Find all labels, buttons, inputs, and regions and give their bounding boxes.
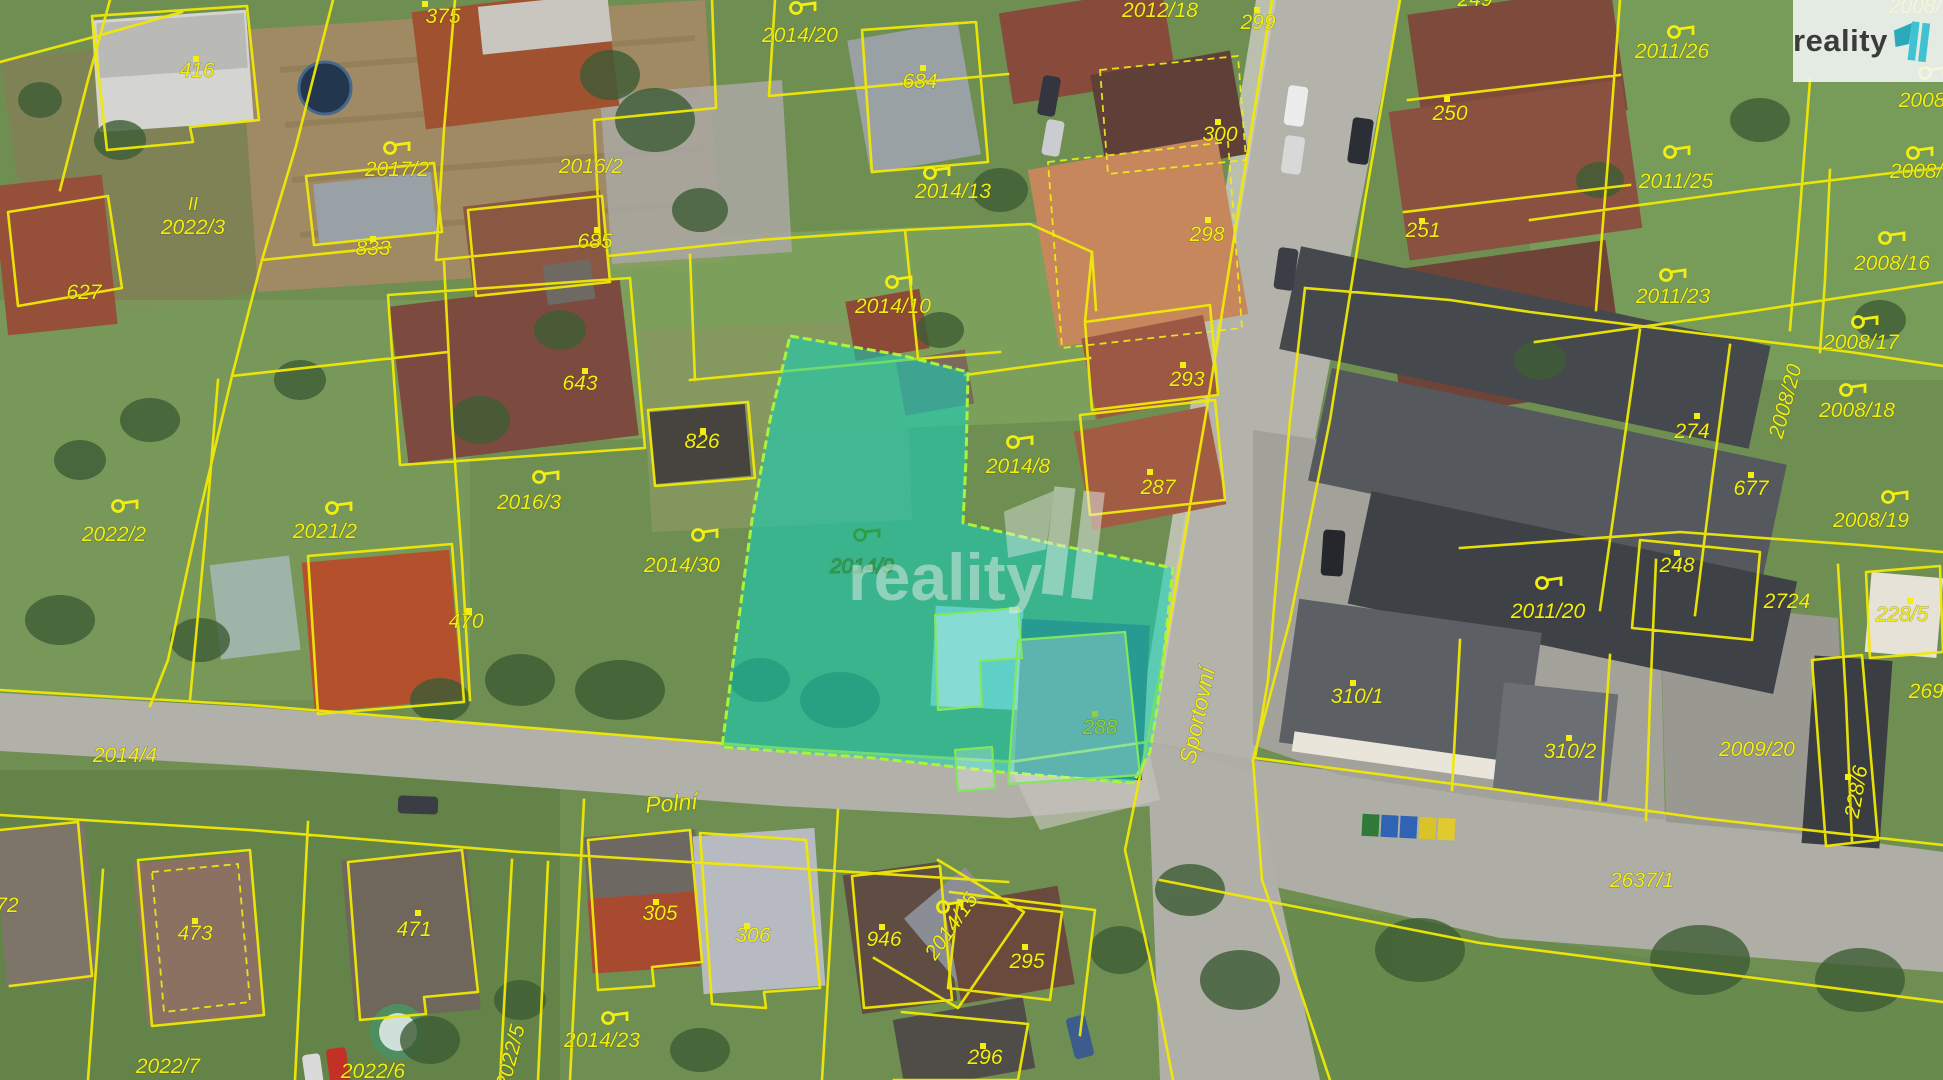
parcel-label: 375 [425,5,460,28]
parcel-label: II [188,194,198,214]
parcel-label: 2011/23 [1635,285,1711,308]
parcel-label: 2022/6 [340,1060,406,1080]
parcel-label: 310/2 [1544,740,1597,763]
parcel-label: 2022/2 [81,523,147,546]
parcel-label: 2014/10 [854,295,931,318]
building-dot [980,1043,986,1049]
parcel-label: 2014/20 [761,24,838,47]
parcel-label: 293 [1168,368,1204,391]
parcel-label: 2022/3 [160,216,226,239]
building-dot [1254,7,1260,13]
building-dot [466,608,472,614]
logo-brand-text: reality [1793,23,1888,59]
parcel-label: 2016/2 [558,155,624,178]
parcel-label: 2014/23 [563,1029,640,1052]
parcel-label: 287 [1139,476,1176,499]
parcel-label: 2637/1 [1609,869,1674,892]
parcel-label: 473 [177,922,212,945]
building-dot [1215,119,1221,125]
parcel-label: 248 [1658,554,1694,577]
parcel-label: 298 [1188,223,1224,246]
parcel-label: 677 [1733,477,1769,500]
parcel-label: 2022/7 [135,1055,202,1078]
building-dot [370,236,376,242]
parcel-label: 2011/25 [1638,170,1714,193]
parcel-label: 416 [179,59,214,82]
parcel-label: 2008/18 [1818,399,1895,422]
parcel-label: 643 [562,372,597,395]
parcel-label: 305 [642,902,677,925]
parcel-label: 2014/30 [643,554,720,577]
building-dot [1022,944,1028,950]
parcel-label: 2012/18 [1121,0,1198,22]
logo-11-icon [1894,11,1933,71]
parcel-label: 2014/8 [985,455,1051,478]
parcel-label: 2014/4 [92,744,157,767]
building-dot [879,924,885,930]
building-dot [1907,598,1913,604]
parcel-label: 2016/3 [496,491,562,514]
parcel-label: 2017/2 [364,158,430,181]
parcel-label: 72 [0,894,19,917]
street-label: Polní [644,788,701,818]
parcel-label: 2009/20 [1718,738,1795,761]
building-dot [1419,218,1425,224]
parcel-label: 471 [396,918,431,941]
parcel-label: 249 [1456,0,1492,11]
parcel-label: 946 [866,928,901,951]
parcel-label: 296 [966,1046,1002,1069]
building-dot [1205,217,1211,223]
parcel-label: 685 [577,230,612,253]
parcel-label: 295 [1008,950,1044,973]
building-dot [192,918,198,924]
building-dot [700,428,706,434]
parcel-label: 2691 [1908,680,1943,703]
map-viewport[interactable]: 4163752017/22022/3833627II2016/26852014/… [0,0,1943,1080]
building-dot [920,65,926,71]
parcel-label: 2014/13 [914,180,991,203]
reality11-logo[interactable]: reality [1793,0,1943,82]
building-dot [1180,362,1186,368]
parcel-label: 2008/16 [1853,252,1930,275]
car [398,795,439,814]
parcel-label: 2724 [1763,590,1811,613]
parcel-label: 2008/1 [1889,160,1943,183]
building-dot [653,899,659,905]
building-dot [1845,774,1851,780]
building-dot [1694,413,1700,419]
building-dot [1350,680,1356,686]
aerial-map-canvas[interactable]: 4163752017/22022/3833627II2016/26852014/… [0,0,1943,1080]
car [1320,529,1345,576]
parcel-label: 306 [735,924,770,947]
building-dot [1092,711,1098,717]
parcel-label: 627 [66,281,102,304]
building-dot [1444,96,1450,102]
building-dot [1566,735,1572,741]
parcel-label: 310/1 [1331,685,1384,708]
parcel-label: 299 [1239,11,1275,34]
parcel-label: 2011/26 [1634,40,1710,63]
parcel-label: 288 [1081,716,1117,739]
parcel-label: 2008/19 [1832,509,1909,532]
parcel-label: 2008/ [1898,89,1943,112]
building-dot [193,56,199,62]
building-dot [415,910,421,916]
parcel-label: 250 [1431,102,1467,125]
building-dot [422,1,428,7]
building-dot [1674,550,1680,556]
parcel-label: 274 [1673,420,1709,443]
parcel-label: 2021/2 [292,520,358,543]
parcel-label: 2008/17 [1822,331,1900,354]
building-dot [1748,472,1754,478]
parcel-label: 300 [1202,123,1237,146]
parcel-label: 2011/20 [1510,600,1586,623]
building-dot [594,227,600,233]
parcel-label: 684 [902,70,937,93]
building-dot [744,923,750,929]
parcel-label: 228/5 [1875,603,1929,626]
building-dot [582,368,588,374]
building-dot [1147,469,1153,475]
